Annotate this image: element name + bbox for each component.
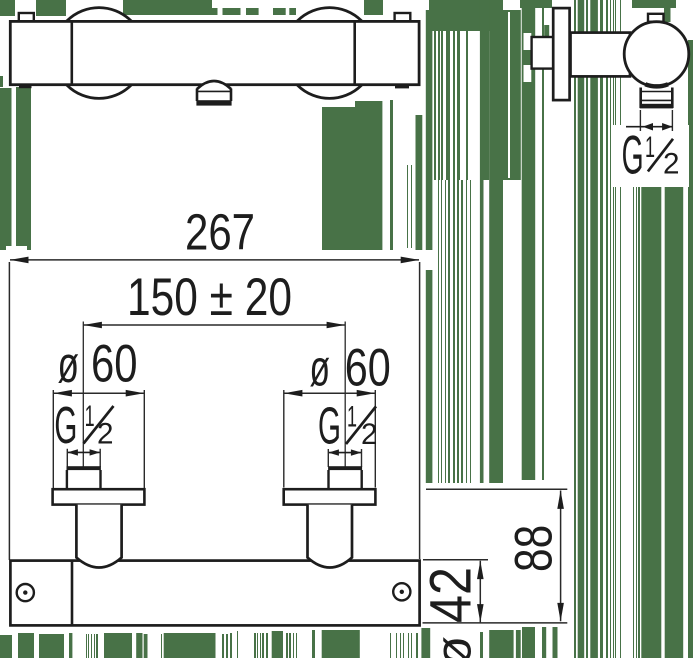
- svg-text:G: G: [318, 398, 341, 456]
- svg-text:ø: ø: [58, 336, 80, 393]
- svg-text:267: 267: [185, 204, 255, 261]
- svg-text:G: G: [54, 397, 77, 455]
- svg-text:42: 42: [419, 567, 484, 623]
- svg-text:60: 60: [91, 335, 138, 394]
- svg-text:2: 2: [663, 147, 680, 180]
- svg-text:1: 1: [85, 400, 95, 433]
- svg-text:150 ± 20: 150 ± 20: [127, 268, 292, 327]
- svg-text:G: G: [622, 124, 644, 186]
- svg-text:1: 1: [645, 131, 655, 164]
- svg-text:ø: ø: [426, 636, 482, 658]
- svg-text:60: 60: [345, 338, 391, 397]
- svg-text:ø: ø: [310, 339, 331, 396]
- svg-text:88: 88: [505, 525, 564, 572]
- svg-text:1: 1: [347, 400, 357, 433]
